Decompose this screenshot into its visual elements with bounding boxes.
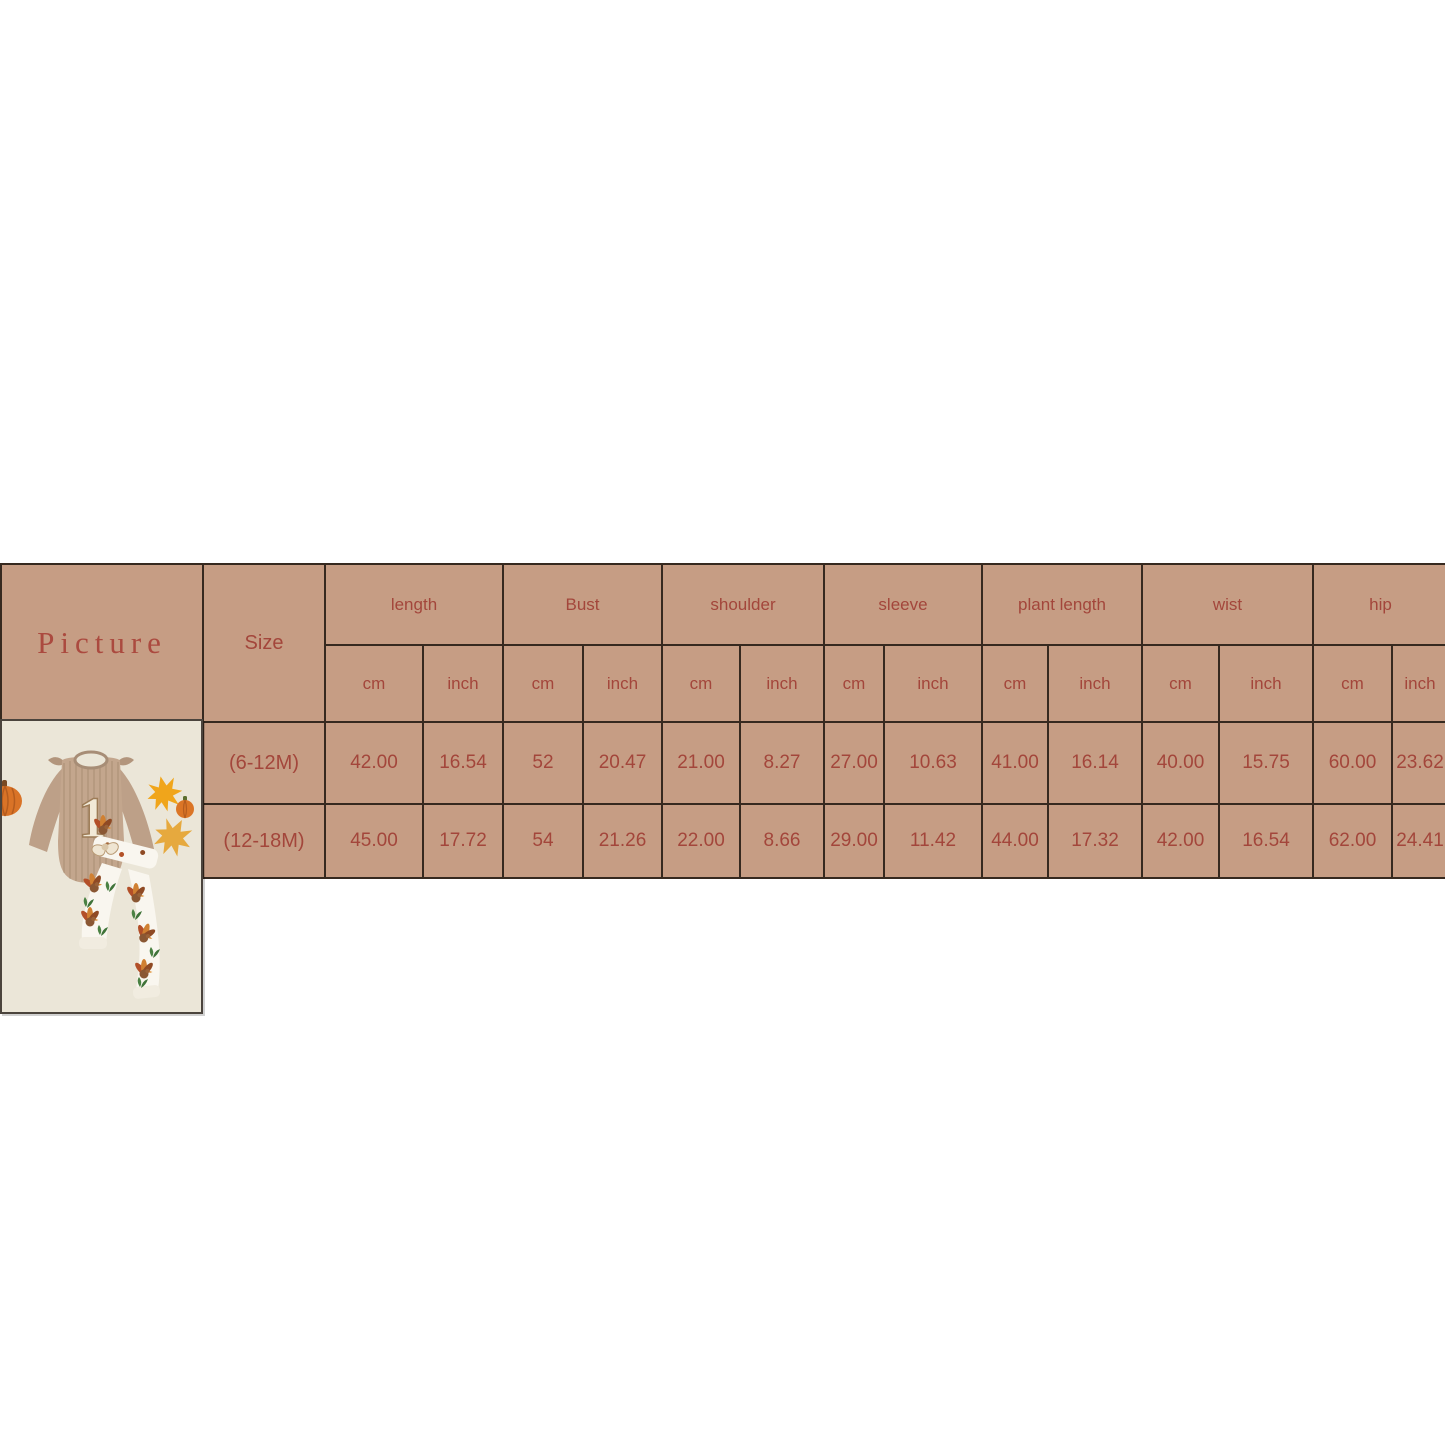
value-cell: 16.14 bbox=[1049, 723, 1143, 805]
value-cell: 23.62 bbox=[1393, 723, 1445, 805]
col-group-hip: hip bbox=[1314, 565, 1445, 646]
unit-sleeve-cm: cm bbox=[825, 646, 885, 723]
value-cell: 45.00 bbox=[326, 805, 424, 879]
value-cell: 42.00 bbox=[1143, 805, 1220, 879]
value-cell: 52 bbox=[504, 723, 584, 805]
unit-shoulder-inch: inch bbox=[741, 646, 825, 723]
col-group-sleeve: sleeve bbox=[825, 565, 983, 646]
value-cell: 40.00 bbox=[1143, 723, 1220, 805]
unit-sleeve-inch: inch bbox=[885, 646, 983, 723]
value-cell: 41.00 bbox=[983, 723, 1049, 805]
value-cell: 22.00 bbox=[663, 805, 741, 879]
col-group-bust: Bust bbox=[504, 565, 663, 646]
value-cell: 8.27 bbox=[741, 723, 825, 805]
value-cell: 60.00 bbox=[1314, 723, 1393, 805]
value-cell: 27.00 bbox=[825, 723, 885, 805]
value-cell: 44.00 bbox=[983, 805, 1049, 879]
unit-plant-length-cm: cm bbox=[983, 646, 1049, 723]
value-cell: 16.54 bbox=[424, 723, 504, 805]
value-cell: 10.63 bbox=[885, 723, 983, 805]
value-cell: 8.66 bbox=[741, 805, 825, 879]
row-size-12-18m: (12-18M) bbox=[204, 805, 326, 879]
value-cell: 42.00 bbox=[326, 723, 424, 805]
value-cell: 29.00 bbox=[825, 805, 885, 879]
value-cell: 17.72 bbox=[424, 805, 504, 879]
product-photo-illustration: 1 bbox=[2, 721, 201, 1012]
unit-wist-inch: inch bbox=[1220, 646, 1314, 723]
value-cell: 62.00 bbox=[1314, 805, 1393, 879]
unit-bust-cm: cm bbox=[504, 646, 584, 723]
picture-column-header: Picture bbox=[2, 565, 204, 723]
value-cell: 21.00 bbox=[663, 723, 741, 805]
value-cell: 15.75 bbox=[1220, 723, 1314, 805]
row-size-6-12m: (6-12M) bbox=[204, 723, 326, 805]
value-cell: 24.41 bbox=[1393, 805, 1445, 879]
value-cell: 11.42 bbox=[885, 805, 983, 879]
col-group-shoulder: shoulder bbox=[663, 565, 825, 646]
unit-bust-inch: inch bbox=[584, 646, 663, 723]
col-group-plant-length: plant length bbox=[983, 565, 1143, 646]
size-chart-table: Picture Size length Bust shoulder sleeve… bbox=[0, 563, 1445, 879]
value-cell: 20.47 bbox=[584, 723, 663, 805]
unit-hip-inch: inch bbox=[1393, 646, 1445, 723]
value-cell: 17.32 bbox=[1049, 805, 1143, 879]
unit-length-cm: cm bbox=[326, 646, 424, 723]
unit-plant-length-inch: inch bbox=[1049, 646, 1143, 723]
value-cell: 21.26 bbox=[584, 805, 663, 879]
unit-wist-cm: cm bbox=[1143, 646, 1220, 723]
size-column-header: Size bbox=[204, 565, 326, 723]
unit-length-inch: inch bbox=[424, 646, 504, 723]
col-group-wist: wist bbox=[1143, 565, 1314, 646]
product-photo: 1 bbox=[0, 719, 203, 1014]
col-group-length: length bbox=[326, 565, 504, 646]
value-cell: 54 bbox=[504, 805, 584, 879]
unit-shoulder-cm: cm bbox=[663, 646, 741, 723]
unit-hip-cm: cm bbox=[1314, 646, 1393, 723]
value-cell: 16.54 bbox=[1220, 805, 1314, 879]
